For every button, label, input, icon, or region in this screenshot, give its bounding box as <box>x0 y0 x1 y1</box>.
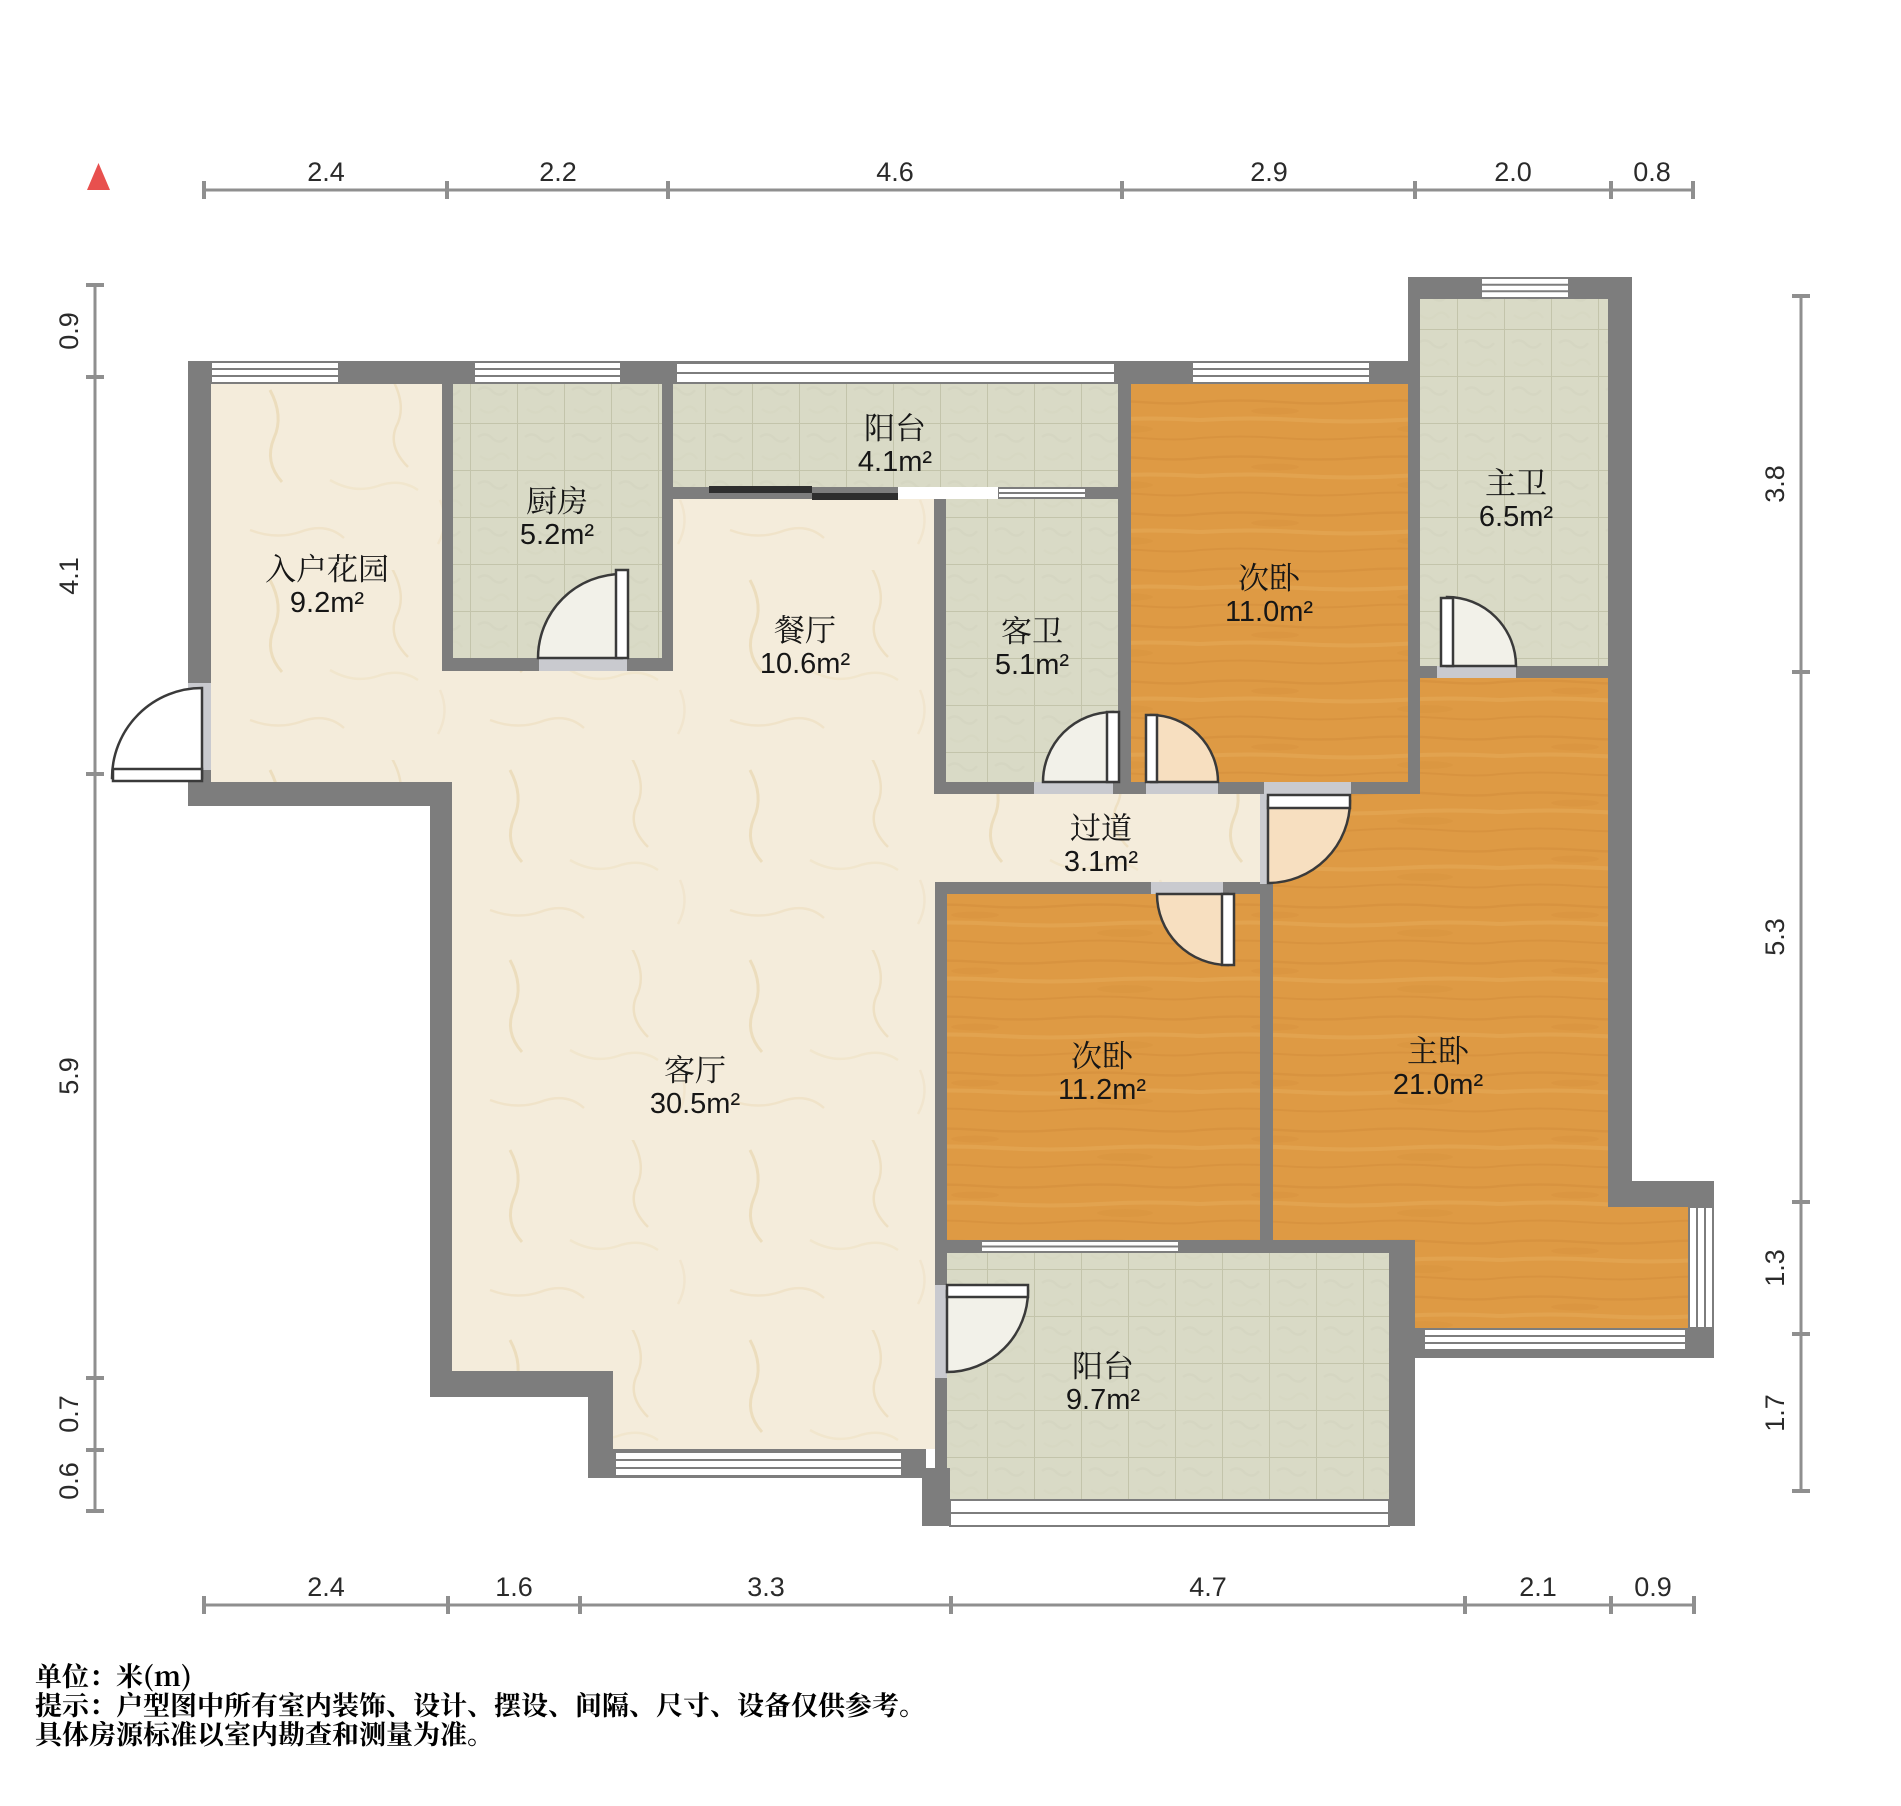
svg-text:3.1m²: 3.1m² <box>1064 846 1138 878</box>
svg-text:5.1m²: 5.1m² <box>995 649 1069 681</box>
svg-text:10.6m²: 10.6m² <box>760 648 851 680</box>
svg-text:5.2m²: 5.2m² <box>520 519 594 551</box>
svg-text:11.2m²: 11.2m² <box>1058 1074 1146 1106</box>
svg-text:2.4: 2.4 <box>307 1572 345 1602</box>
svg-text:0.6: 0.6 <box>54 1462 84 1500</box>
svg-text:0.9: 0.9 <box>54 312 84 350</box>
svg-text:2.4: 2.4 <box>307 157 345 187</box>
svg-text:2.1: 2.1 <box>1519 1572 1557 1602</box>
svg-text:4.1: 4.1 <box>54 557 84 595</box>
svg-text:9.7m²: 9.7m² <box>1066 1384 1140 1416</box>
svg-text:1.6: 1.6 <box>495 1572 533 1602</box>
svg-text:3.3: 3.3 <box>747 1572 785 1602</box>
svg-text:30.5m²: 30.5m² <box>650 1088 741 1120</box>
svg-text:2.9: 2.9 <box>1250 157 1288 187</box>
svg-text:2.0: 2.0 <box>1494 157 1532 187</box>
svg-text:0.7: 0.7 <box>54 1395 84 1433</box>
svg-text:5.3: 5.3 <box>1760 918 1790 956</box>
svg-text:1.3: 1.3 <box>1760 1249 1790 1287</box>
svg-text:0.8: 0.8 <box>1633 157 1671 187</box>
svg-text:4.1m²: 4.1m² <box>858 446 932 478</box>
svg-text:6.5m²: 6.5m² <box>1479 501 1553 533</box>
svg-text:0.9: 0.9 <box>1634 1572 1672 1602</box>
svg-text:4.6: 4.6 <box>876 157 914 187</box>
svg-text:2.2: 2.2 <box>539 157 577 187</box>
svg-text:9.2m²: 9.2m² <box>290 587 364 619</box>
svg-text:21.0m²: 21.0m² <box>1393 1069 1484 1101</box>
svg-text:4.7: 4.7 <box>1189 1572 1227 1602</box>
svg-text:1.7: 1.7 <box>1760 1394 1790 1432</box>
svg-text:5.9: 5.9 <box>54 1057 84 1095</box>
svg-text:11.0m²: 11.0m² <box>1225 596 1313 628</box>
svg-text:3.8: 3.8 <box>1760 465 1790 503</box>
